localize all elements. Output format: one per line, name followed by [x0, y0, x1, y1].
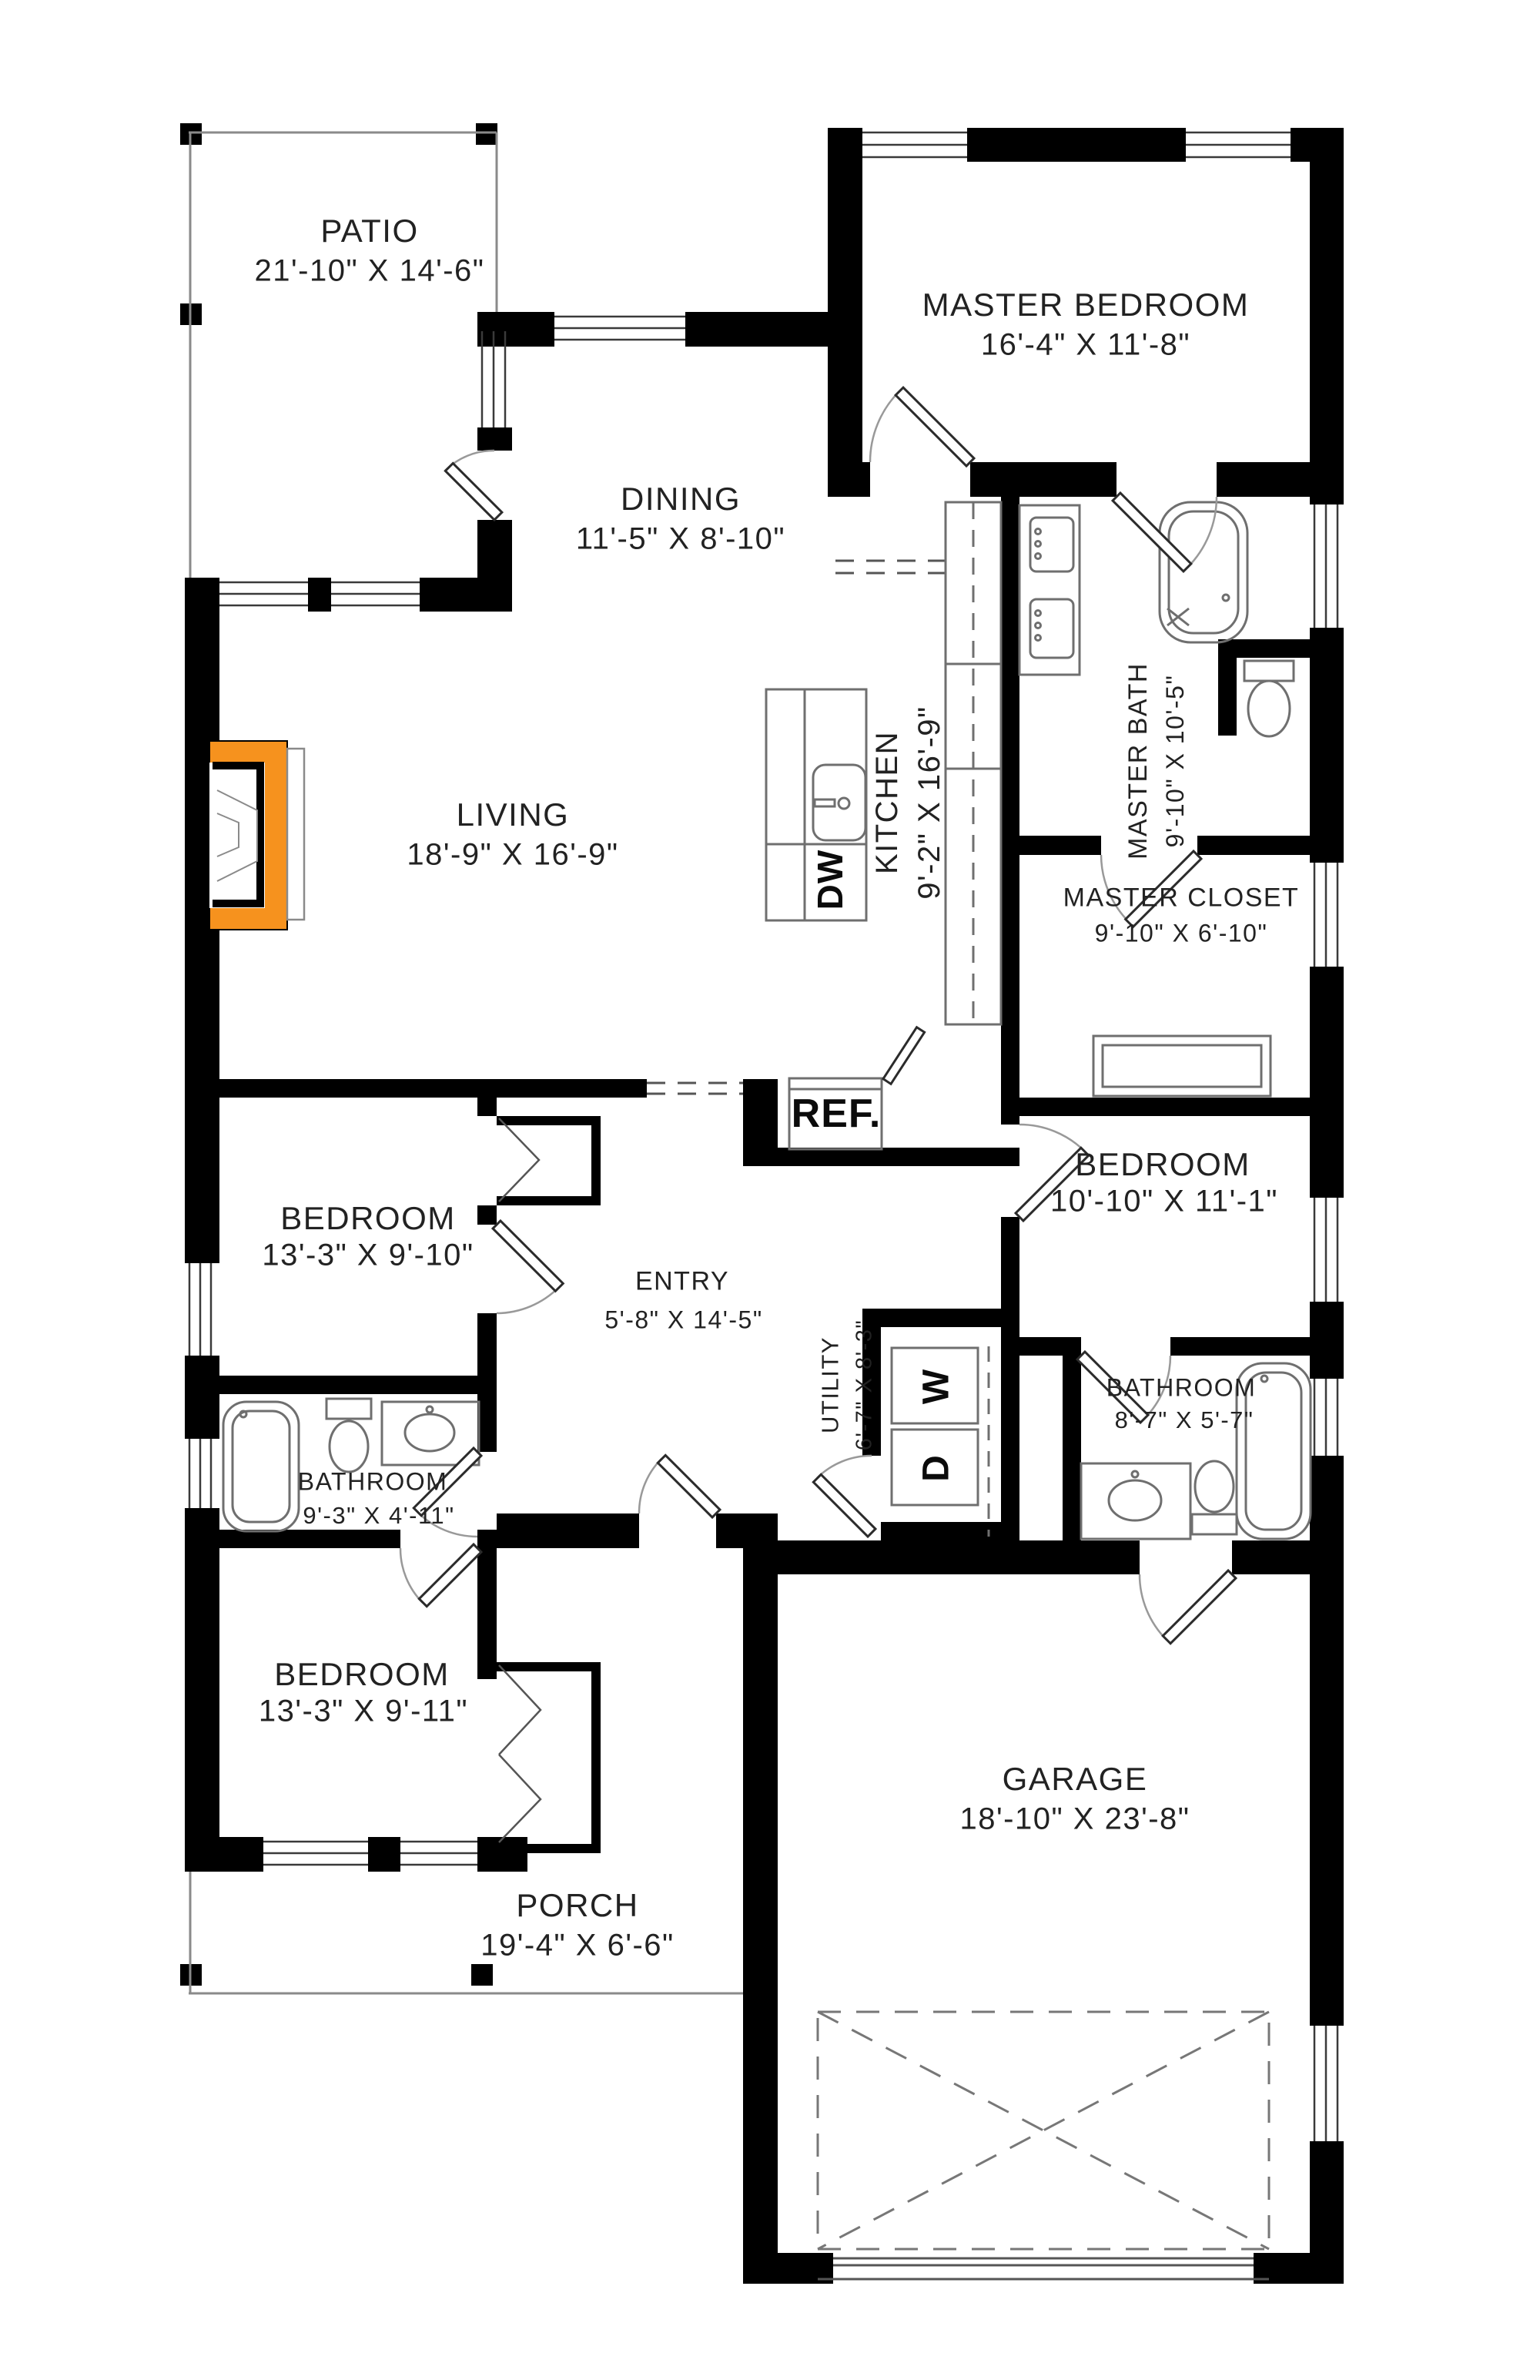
room-label-bathroom-right: BATHROOM [1106, 1374, 1257, 1403]
master-bath-vanity [1019, 505, 1080, 675]
room-dims-master-bath: 9'-10" X 10'-5" [1161, 675, 1190, 848]
room-label-bedroom-mid: BEDROOM [280, 1200, 456, 1237]
room-dims-bedroom-mid: 13'-3" X 9'-10" [262, 1239, 474, 1273]
dryer-label: D [916, 1454, 958, 1482]
room-label-porch: PORCH [516, 1887, 638, 1924]
pantry-door-leaf [883, 1027, 925, 1084]
kitchen-counter [946, 502, 1001, 1024]
room-label-dining: DINING [621, 481, 741, 518]
room-label-patio: PATIO [320, 213, 418, 250]
room-dims-garage: 18'-10" X 23'-8" [960, 1802, 1190, 1837]
room-label-master-bedroom: MASTER BEDROOM [922, 287, 1250, 323]
room-dims-bedroom-right: 10'-10" X 11'-1" [1050, 1185, 1278, 1219]
room-dims-bedroom-bottom: 13'-3" X 9'-11" [259, 1694, 468, 1729]
floor-plan-drawing [0, 0, 1540, 2380]
room-label-master-bath: MASTER BATH [1123, 662, 1153, 860]
door-arcs [400, 391, 1217, 1640]
master-bath-tub [1160, 502, 1247, 642]
garage-door [818, 2012, 1269, 2279]
room-label-living: LIVING [457, 796, 570, 833]
dishwasher-label: DW [809, 850, 851, 910]
room-dims-master-closet: 9'-10" X 6'-10" [1095, 920, 1268, 948]
floor-plan: PATIO 21'-10" X 14'-6" MASTER BEDROOM 16… [0, 0, 1540, 2380]
fireplace [209, 741, 304, 930]
closet-dresser [1093, 1036, 1270, 1096]
garage-service-door-leaf [1163, 1570, 1236, 1644]
room-dims-bathroom-left: 9'-3" X 4'-11" [303, 1502, 454, 1530]
room-dims-bathroom-right: 8'-7" X 5'-7" [1115, 1406, 1254, 1434]
master-bedroom-door-leaf [896, 387, 974, 466]
room-dims-utility: 6'-7" X 8'-3" [852, 1319, 878, 1450]
bedroom-bottom-door-leaf [419, 1544, 481, 1607]
room-label-kitchen: KITCHEN [870, 731, 905, 874]
room-label-utility-block: UTILITY 6'-7" X 8'-3" [817, 1319, 878, 1450]
bathroom-left-tub [223, 1402, 299, 1531]
room-dims-porch: 19'-4" X 6'-6" [480, 1929, 674, 1963]
utility-door-leaf [813, 1474, 875, 1537]
washer-label: W [916, 1369, 958, 1404]
room-label-master-bath-block: MASTER BATH 9'-10" X 10'-5" [1123, 662, 1190, 860]
patio-door-leaf [445, 463, 502, 520]
room-dims-patio: 21'-10" X 14'-6" [255, 254, 485, 289]
room-label-garage: GARAGE [1003, 1761, 1148, 1798]
bathroom-left-vanity [382, 1402, 479, 1465]
room-label-bedroom-bottom: BEDROOM [274, 1656, 450, 1693]
room-dims-entry: 5'-8" X 14'-5" [604, 1306, 762, 1335]
bathroom-right-toilet [1192, 1461, 1237, 1534]
room-dims-living: 18'-9" X 16'-9" [407, 838, 618, 873]
bedroom-mid-door-leaf [493, 1221, 563, 1291]
bathroom-right-vanity [1081, 1463, 1190, 1539]
room-label-utility: UTILITY [817, 1336, 845, 1433]
bathroom-left-toilet [326, 1399, 371, 1472]
refrigerator-label: REF. [792, 1091, 882, 1137]
room-dims-kitchen: 9'-2" X 16'-9" [912, 706, 947, 899]
room-label-bathroom-left: BATHROOM [298, 1468, 448, 1497]
room-label-kitchen-block: KITCHEN 9'-2" X 16'-9" [870, 706, 947, 899]
room-label-master-closet: MASTER CLOSET [1063, 883, 1300, 913]
room-dims-master-bedroom: 16'-4" X 11'-8" [981, 328, 1190, 363]
room-label-entry: ENTRY [635, 1267, 729, 1297]
doors [400, 387, 1236, 1644]
master-bath-toilet [1244, 661, 1294, 736]
room-dims-dining: 11'-5" X 8'-10" [576, 522, 785, 557]
front-door-leaf [658, 1455, 720, 1517]
door-leaves [413, 387, 1236, 1644]
room-label-bedroom-right: BEDROOM [1075, 1146, 1250, 1183]
